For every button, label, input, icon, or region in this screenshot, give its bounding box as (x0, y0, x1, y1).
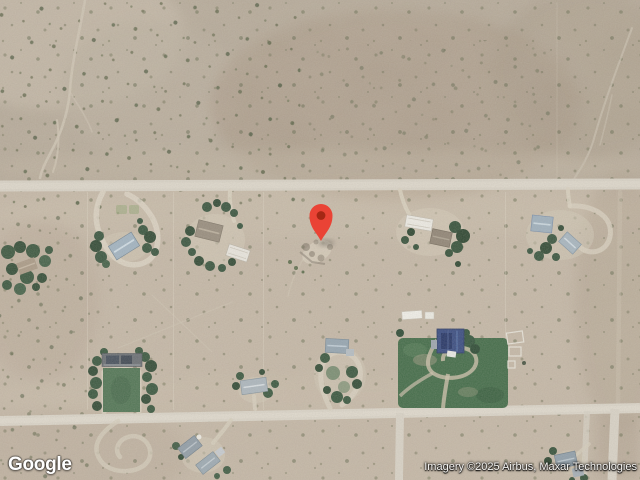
satellite-map[interactable] (0, 0, 640, 480)
google-logo[interactable]: Google (8, 454, 72, 476)
pin-dot (317, 211, 326, 220)
map-viewport[interactable]: Google Imagery ©2025 Airbus, Maxar Techn… (0, 0, 640, 480)
attribution-text: Imagery ©2025 Airbus, Maxar Technologies (424, 461, 637, 473)
photo-grain (0, 0, 640, 480)
